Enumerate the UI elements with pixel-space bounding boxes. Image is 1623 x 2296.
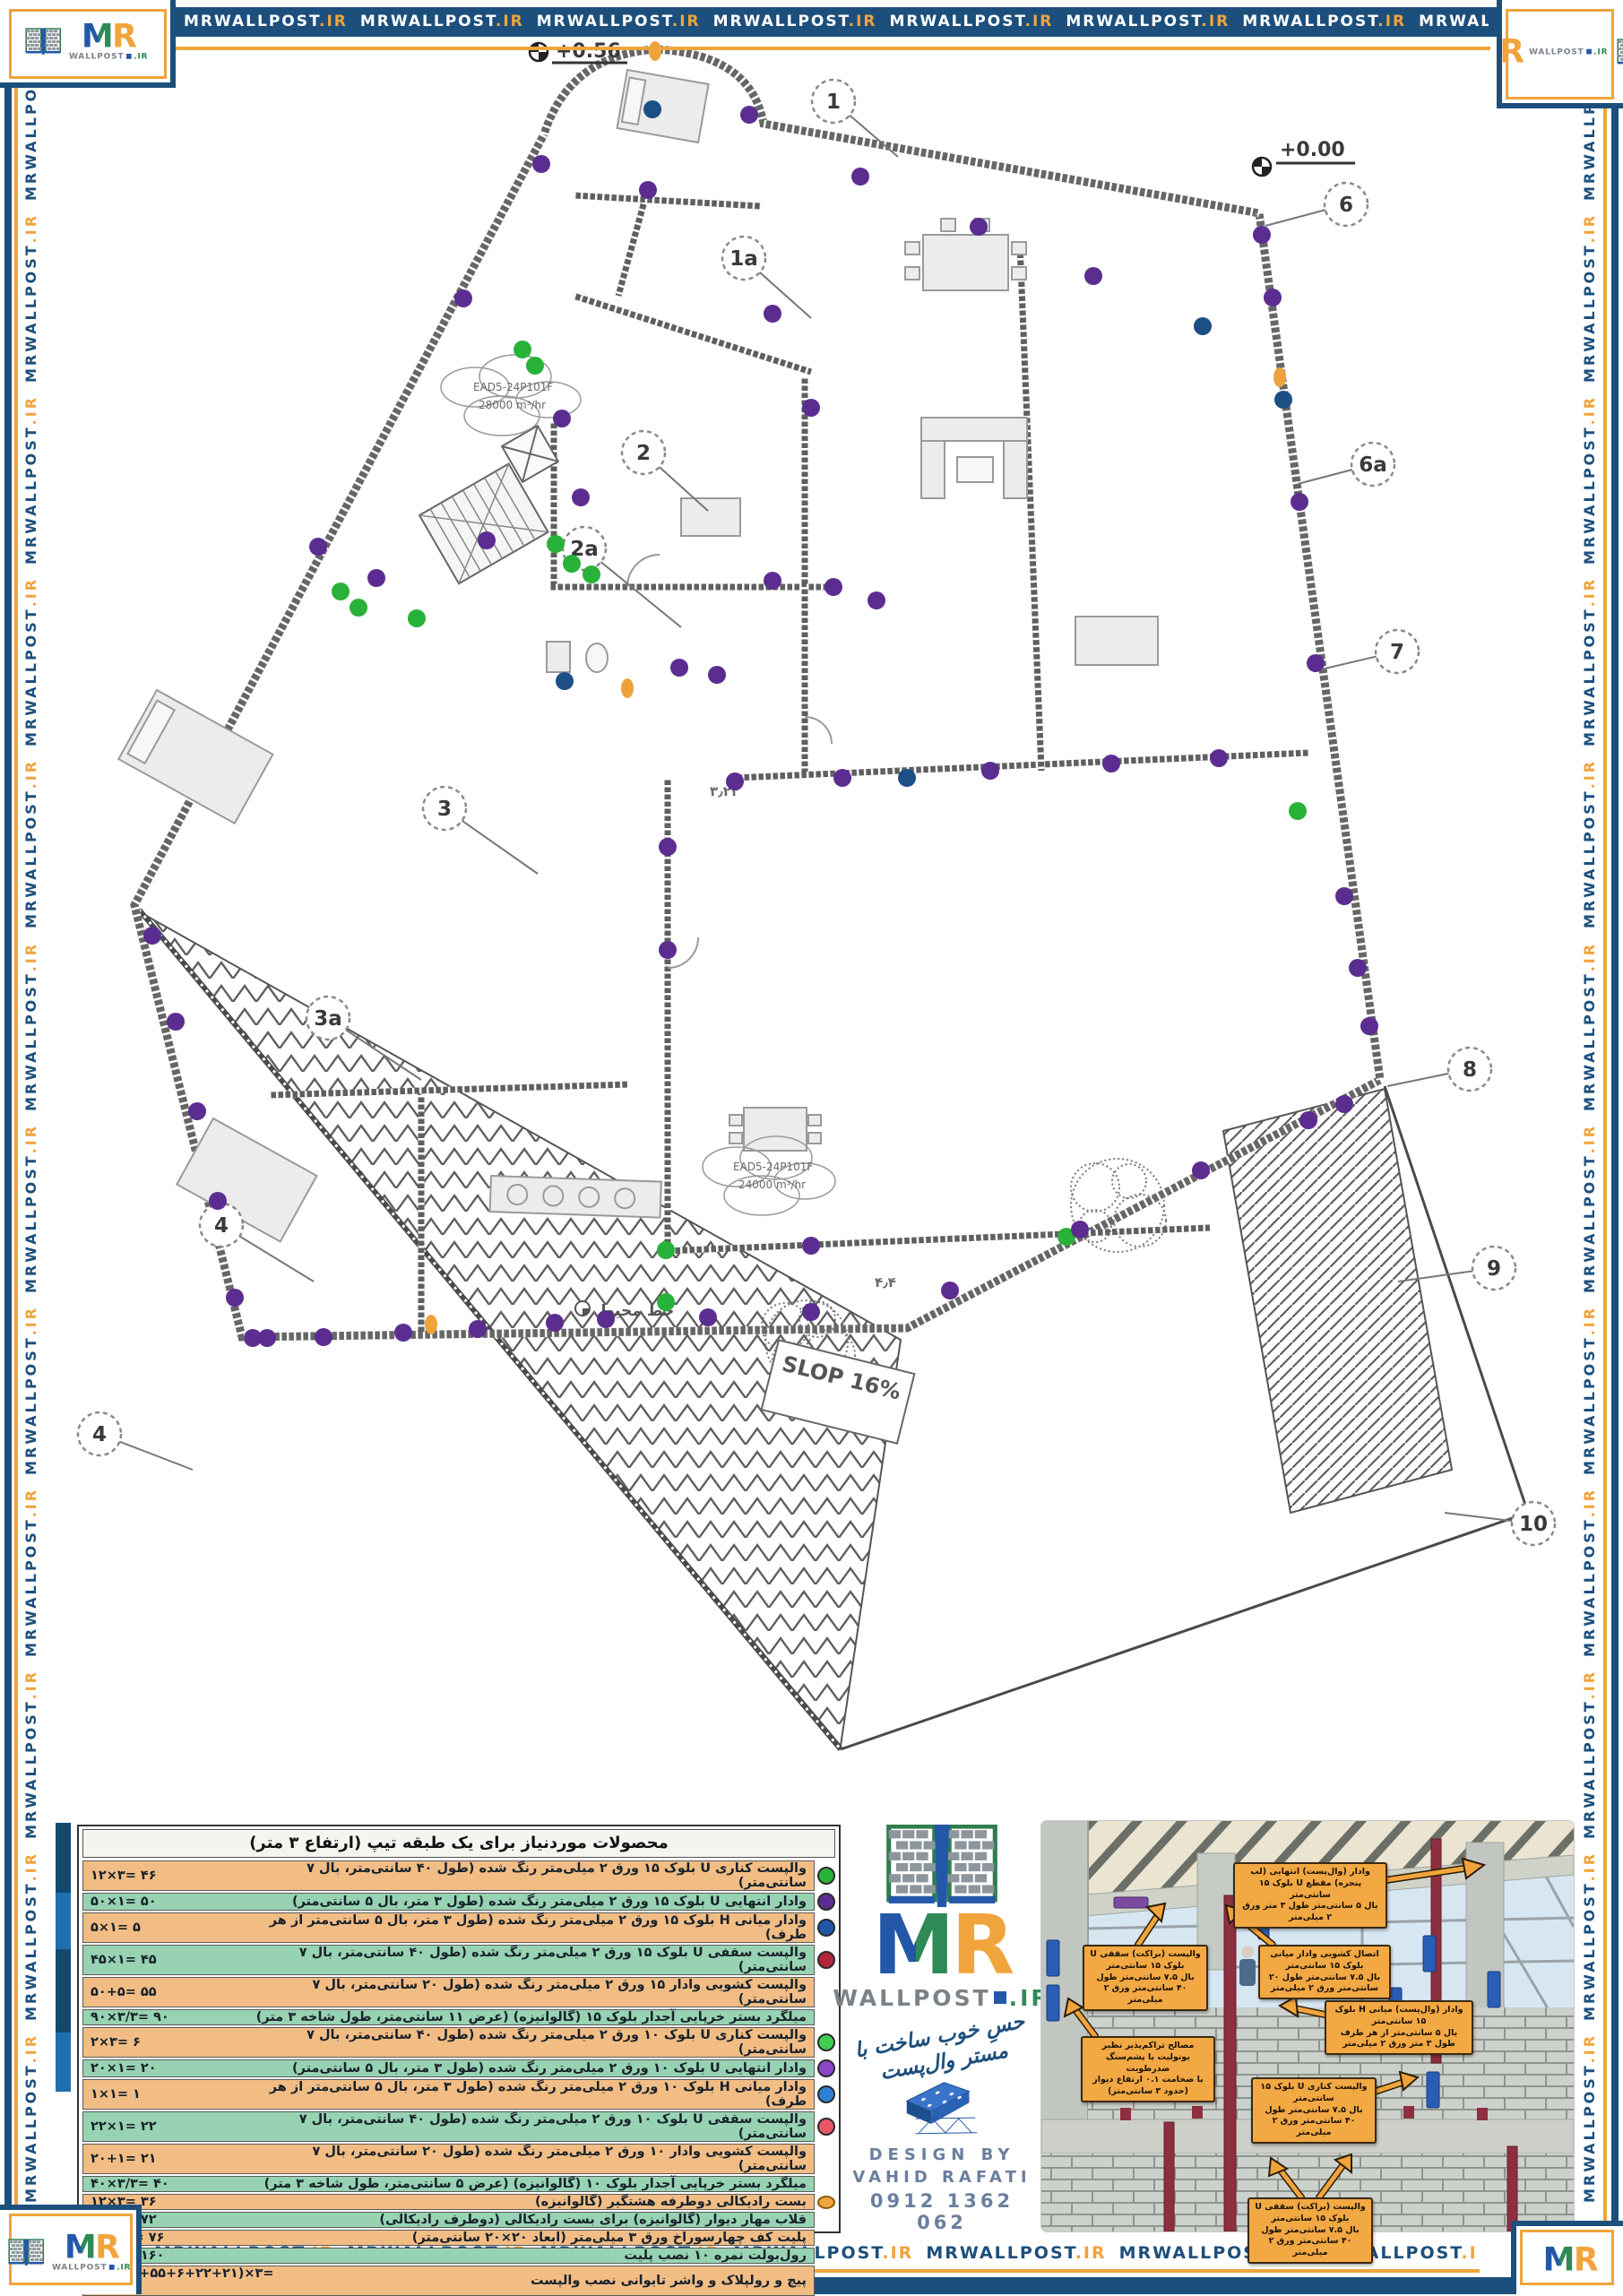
wallpost-dot-p <box>1102 755 1120 773</box>
wallpost-dot-p <box>1299 1111 1317 1129</box>
callout-line: اتصال کشویی وادار میانی بلوک ۱۵ سانتی‌مت… <box>1265 1949 1384 1972</box>
wallpost-dot-p <box>1084 267 1102 285</box>
callout-line: با ضخامت ۰.۱ ارتفاع دیوار (حدود ۳ سانتی‌… <box>1088 2075 1208 2098</box>
brand-text: MRWALLPOST.IR <box>22 213 39 383</box>
brick-building-icon <box>875 1825 1009 1907</box>
elevation-marker-right: +0.00 <box>1253 139 1355 176</box>
brand-strip-right: MRWALLPOST.IRMRWALLPOST.IRMRWALLPOST.IRM… <box>1578 85 1601 2209</box>
legend-marker-empty <box>817 2248 835 2264</box>
photo-callout: والپست کناری U بلوک ۱۵ سانتی‌متربال ۷.۵ … <box>1251 2077 1377 2144</box>
photo-callout: والپست (براکت) سقفی U بلوک ۱۵ سانتی‌مترب… <box>1083 1945 1208 2011</box>
wallpost-dot-n <box>643 100 661 118</box>
legend-marker-empty <box>817 2230 835 2246</box>
wallpost-dot-p <box>659 941 677 959</box>
legend-description: والپست کشویی وادار ۱۵ ورق ۲ میلی‌متر رنگ… <box>246 1978 814 2007</box>
brand-panel: MR WALLPOST.IR حسِ خوب ساخت با مستر وال‌… <box>848 1825 1036 2233</box>
designer-credit: DESIGN BY VAHID RAFATI 0912 1362 062 <box>848 2145 1036 2233</box>
wallpost-dot-p <box>740 106 758 124</box>
brand-text: MRWALLPOST.IR <box>713 13 877 30</box>
legend-quantity: ۵۰+۵= ۵۵ <box>83 1985 243 1999</box>
wallpost-dot-p <box>802 399 820 417</box>
legend-row-line: (۴۶+۴۵+۵۵+۶+۲۲+۲۱)×۳= ۶۰۰پیچ و رولپلاک و… <box>82 2266 835 2296</box>
wallpost-dot-p <box>478 531 496 549</box>
legend-row-line: ۴۵×۱= ۴۵والپست سقفی U بلوک ۱۵ ورق ۲ میلی… <box>82 1945 835 1975</box>
wallpost-dot-p <box>981 762 999 780</box>
brand-text: MRWALLPOST.IR <box>1066 13 1230 30</box>
grid-bubble-label: 2 <box>636 442 651 465</box>
wallpost-dot-p <box>167 1013 185 1031</box>
wallpost-dot-n <box>1194 317 1212 335</box>
grid-bubble-label: 7 <box>1390 641 1404 664</box>
grid-bubble-label: 3a <box>314 1007 342 1031</box>
legend-quantity: ۱۲×۳= ۴۶ <box>83 1869 243 1883</box>
callout-line: بال ۵ سانتی‌متر از هر طرف طول ۳ متر ورق … <box>1332 2028 1466 2051</box>
worker-figure <box>1239 1946 1256 1986</box>
wallpost-dot-g <box>332 583 350 600</box>
legend-quantity: ۴۰×۳/۳= ۴۰ <box>83 2177 243 2191</box>
wallpost-dot-p <box>1349 959 1367 977</box>
wallpost-dot-p <box>1335 1095 1353 1113</box>
wallpost-dot-p <box>553 410 571 427</box>
legend-quantity: ۲×۳= ۶ <box>83 2035 243 2050</box>
legend-row: ۱۲×۳= ۴۶والپست کناری U بلوک ۱۵ ورق ۲ میل… <box>82 1860 815 1891</box>
wallpost-dot-o <box>649 41 661 61</box>
legend-row-line: ۵۰×۱= ۵۰وادار انتهایی U بلوک ۱۵ ورق ۲ می… <box>82 1893 835 1911</box>
brand-text: MRWALLPOST.IR <box>22 1124 39 1293</box>
legend-row-line: ۵۵+۲۱= ۷۶پلیت کف چهارسوراخ ورق ۳ میلی‌مت… <box>82 2230 835 2246</box>
legend-row-line: ۴۰×۳/۳= ۴۰میلگرد بستر خرپایی آجدار بلوک … <box>82 2176 835 2192</box>
design-by-label: DESIGN BY <box>848 2145 1036 2164</box>
legend-quantity: ۲۰+۱= ۲۱ <box>83 2152 243 2166</box>
legend-marker-dot <box>817 2111 835 2142</box>
brand-text: MRWALLPOST.IR <box>1242 13 1406 30</box>
svg-text:+0.00: +0.00 <box>1280 139 1345 161</box>
corner-logo-bottom-left: MR WALLPOST.IR <box>0 2205 142 2294</box>
wallpost-dot-o <box>621 678 634 698</box>
brand-text: MRWALLPOST.IR <box>890 13 1054 30</box>
wallpost-dot-n <box>898 769 916 787</box>
cloud1-flow: 28000 m³/hr <box>479 399 546 411</box>
legend-row: ۵۰×۱= ۵۰وادار انتهایی U بلوک ۱۵ ورق ۲ می… <box>82 1893 815 1911</box>
legend-description: پلیت کف چهارسوراخ ورق ۳ میلی‌متر (ابعاد … <box>246 2231 814 2245</box>
legend-marker-dot <box>817 2059 835 2077</box>
wallpost-dot-o <box>425 1315 437 1334</box>
grid-bubble-label: 9 <box>1487 1257 1501 1281</box>
materials-legend-table: محصولات موردنیاز برای یک طبقه تیپ (ارتفا… <box>77 1825 841 2233</box>
brand-text: MRWALLPOST.IR <box>1581 1488 1598 1657</box>
brand-text: MRWALLPOST.IR <box>22 2033 39 2203</box>
brand-text: MRWALLPOST.IR <box>22 577 39 747</box>
wallpost-dot-p <box>367 569 385 587</box>
wallpost-dot-p <box>708 666 726 684</box>
brand-text: MRWALLPOST.IR <box>22 1488 39 1657</box>
wallpost-dot-g <box>657 1241 675 1259</box>
wallpost-dot-g <box>1289 802 1307 820</box>
legend-description: وادار میانی H بلوک ۱۰ ورق ۲ میلی‌متر رنگ… <box>246 2080 814 2109</box>
legend-marker-dot <box>817 2194 835 2210</box>
callout-line: بال ۵ سانتی‌متر طول ۳ متر ورق ۲ میلی‌متر <box>1240 1901 1380 1924</box>
callout-line: بال ۷.۵ سانتی‌متر طول ۴۰ سانتی‌متر ورق ۲… <box>1090 1972 1201 2007</box>
legend-marker-empty <box>817 2009 835 2025</box>
legend-description: والپست کناری U بلوک ۱۵ ورق ۲ میلی‌متر رن… <box>246 1861 814 1890</box>
svg-text:+0.56: +0.56 <box>556 40 621 63</box>
wallpost-dot-p <box>1335 887 1353 905</box>
legend-row: ۲×۳= ۶والپست کناری U بلوک ۱۰ ورق ۲ میلی‌… <box>82 2027 815 2058</box>
brand-text: MRWALLPOST.IR <box>1581 759 1598 928</box>
legend-row-line: ۵×۱= ۵وادار میانی H بلوک ۱۵ ورق ۲ میلی‌م… <box>82 1912 835 1943</box>
legend-quantity: ۹۰×۳/۳= ۹۰ <box>83 2010 243 2024</box>
brick-building-icon <box>5 2239 48 2266</box>
wallpost-dot-p <box>258 1329 276 1347</box>
legend-title: محصولات موردنیاز برای یک طبقه تیپ (ارتفا… <box>82 1829 835 1858</box>
wallpost-dot-p <box>1307 654 1325 672</box>
legend-description: والپست سقفی U بلوک ۱۵ ورق ۲ میلی‌متر رنگ… <box>246 1946 814 1974</box>
callout-line: والپست کناری U بلوک ۱۵ سانتی‌متر <box>1258 2082 1369 2105</box>
legend-row: ۹۰×۳/۳= ۹۰میلگرد بستر خرپایی آجدار بلوک … <box>82 2009 815 2025</box>
wallpost-dot-p <box>970 218 988 236</box>
wallpost-dot-p <box>699 1308 717 1326</box>
legend-marker-dot <box>817 2079 835 2110</box>
wallpost-dot-p <box>143 927 161 945</box>
door-swings <box>627 555 832 968</box>
callout-line: بال ۷.۵ سانتی‌متر طول ۲۰ سانتی‌متر ورق ۲… <box>1265 1972 1384 1996</box>
photo-callout: اتصال کشویی وادار میانی بلوک ۱۵ سانتی‌مت… <box>1258 1945 1391 1999</box>
wallpost-dot-g <box>526 357 544 375</box>
legend-row-line: ۲۰×۱= ۲۰وادار انتهایی U بلوک ۱۰ ورق ۲ می… <box>82 2059 835 2077</box>
wallpost-dot-p <box>764 572 781 590</box>
brand-text: MRWALLPOST.IR <box>1581 577 1598 747</box>
wallpost-dot-p <box>546 1314 564 1332</box>
wallpost-dot-o <box>1273 367 1286 387</box>
wallpost-dot-g <box>350 599 367 617</box>
legend-quantity: ۱×۱= ۱ <box>83 2087 243 2102</box>
legend-description: پیچ و رولپلاک و واشر تایوانی نصب والپست <box>246 2274 814 2288</box>
designer-name: VAHID RAFATI <box>848 2168 1036 2187</box>
brand-text: MRWALLPOST.IR <box>1581 1670 1598 1839</box>
wallpost-dot-n <box>1274 391 1292 409</box>
wallpost-dot-p <box>469 1320 487 1338</box>
legend-marker-empty <box>817 2212 835 2228</box>
wallpost-dot-p <box>833 769 851 787</box>
legend-description: والپست کشویی وادار ۱۰ ورق ۲ میلی‌متر رنگ… <box>246 2145 814 2173</box>
mr-wallpost-logo: MR WALLPOST.IR <box>833 1825 1050 2011</box>
legend-row: ۴۰×۳/۳= ۴۰میلگرد بستر خرپایی آجدار بلوک … <box>82 2176 815 2192</box>
brand-text: MRWALLPOST.IR <box>360 13 524 30</box>
brand-text: MRWALLPOST.IR <box>1581 2033 1598 2203</box>
staircase <box>419 464 548 584</box>
wallpost-dot-g <box>547 535 565 553</box>
grid-bubble-label: 6 <box>1339 194 1353 217</box>
legend-quantity: ۴۵×۱= ۴۵ <box>83 1953 243 1967</box>
grid-bubble-label: 10 <box>1519 1513 1548 1536</box>
wallpost-dot-p <box>454 289 472 307</box>
brand-text: MRWALLPOST.IR <box>1419 13 1489 30</box>
lower-ramp-hatch-area <box>1223 1089 1452 1513</box>
legend-row: ۱×۱= ۱وادار میانی H بلوک ۱۰ ورق ۲ میلی‌م… <box>82 2079 815 2110</box>
photo-callout: مصالح تراکم‌پذیر نظیر یونولیت یا پشم‌سنگ… <box>1081 2036 1215 2102</box>
legend-description: رول‌بولت نمره ۱۰ نصب پلیت <box>246 2249 814 2263</box>
brand-text: MRWALLPOST.IR <box>22 759 39 928</box>
callout-line: بال ۷.۵ سانتی‌متر طول ۴۰ سانتی‌متر ورق ۲… <box>1255 2225 1366 2259</box>
brand-text: MRWALLPOST.IR <box>22 85 39 201</box>
floor-plan-drawing: EAD5-24P101F 28000 m³/hr EAD5-24P101F 24… <box>0 0 1623 1819</box>
brand-text: MRWALLPOST.IR <box>22 1851 39 2021</box>
callout-line: والپست (براکت) سقفی U بلوک ۱۵ سانتی‌متر <box>1090 1949 1201 1972</box>
wallpost-dot-p <box>726 773 744 790</box>
wallpost-dot-p <box>1291 493 1308 511</box>
grid-bubble-label: 1 <box>826 91 841 114</box>
legend-row-line: ۲۲×۱= ۲۲والپست سقفی U بلوک ۱۰ ورق ۲ میلی… <box>82 2111 835 2142</box>
wallpost-dot-p <box>1253 226 1271 244</box>
legend-row-line: ۱×۱= ۱وادار میانی H بلوک ۱۰ ورق ۲ میلی‌م… <box>82 2079 835 2110</box>
legend-row: ۵۵+۲۱= ۷۶پلیت کف چهارسوراخ ورق ۳ میلی‌مت… <box>82 2230 815 2246</box>
wallpost-dot-p <box>226 1289 244 1307</box>
wallpost-dot-p <box>1071 1221 1089 1239</box>
wallpost-dot-p <box>802 1303 820 1321</box>
legend-row: ۵×۱= ۵وادار میانی H بلوک ۱۵ ورق ۲ میلی‌م… <box>82 1912 815 1943</box>
legend-row: (۴۶+۴۵+۵۵+۶+۲۲+۲۱)×۳= ۶۰۰پیچ و رولپلاک و… <box>82 2266 815 2296</box>
wallpost-dot-p <box>188 1102 206 1120</box>
brick-building-icon <box>1614 39 1623 65</box>
legend-description: وادار انتهایی U بلوک ۱۵ ورق ۲ میلی‌متر ر… <box>246 1895 814 1909</box>
legend-marker-empty <box>817 2144 835 2174</box>
right-border-bar <box>1611 0 1619 2294</box>
legend-quantity: ۵×۱= ۵ <box>83 1921 243 1935</box>
legend-row: ۴۵×۱= ۴۵والپست سقفی U بلوک ۱۵ ورق ۲ میلی… <box>82 1945 815 1975</box>
wallpost-dot-p <box>597 1310 615 1328</box>
legend-row-line: ۵۰+۵= ۵۵والپست کشویی وادار ۱۵ ورق ۲ میلی… <box>82 1977 835 2007</box>
wallpost-dot-p <box>639 181 657 199</box>
legend-row: ۲۲×۱= ۲۲والپست سقفی U بلوک ۱۰ ورق ۲ میلی… <box>82 2111 815 2142</box>
cloud1-code: EAD5-24P101F <box>473 381 553 393</box>
callout-line: بال ۷.۵ سانتی‌متر طول ۴۰ سانتی‌متر ورق ۲… <box>1258 2105 1369 2139</box>
legend-row-line: ۱۲×۳= ۳۶بست رادیکالی دوطرفه هشتگیر (گالو… <box>82 2194 835 2210</box>
callout-line: والپست (براکت) سقفی U بلوک ۱۵ سانتی‌متر <box>1255 2202 1366 2225</box>
legend-description: والپست سقفی U بلوک ۱۰ ورق ۲ میلی‌متر رنگ… <box>246 2112 814 2141</box>
legend-description: میلگرد بستر خرپایی آجدار بلوک ۱۰ (گالوان… <box>246 2177 814 2191</box>
legend-row: ۲۰×۱= ۲۰وادار انتهایی U بلوک ۱۰ ورق ۲ می… <box>82 2059 815 2077</box>
legend-description: میلگرد بستر خرپایی آجدار بلوک ۱۵ (گالوان… <box>246 2010 814 2024</box>
legend-row: ۱۲×۳= ۳۶بست رادیکالی دوطرفه هشتگیر (گالو… <box>82 2194 815 2210</box>
legend-row-line: ۹۰×۳/۳= ۹۰میلگرد بستر خرپایی آجدار بلوک … <box>82 2009 835 2025</box>
brand-text: MRWALLPOST.IR <box>1581 213 1598 383</box>
designer-phone: 0912 1362 062 <box>848 2190 1036 2233</box>
wallpost-dot-p <box>532 155 550 173</box>
brand-text: MRWALLPOST.IR <box>22 941 39 1110</box>
legend-description: والپست کناری U بلوک ۱۰ ورق ۲ میلی‌متر رن… <box>246 2028 814 2057</box>
mrwallpost-floorplan-poster: { "border": {"word": "MRWALLPOST", "tld"… <box>0 0 1623 2294</box>
photo-callout: وادار (وال‌پست) میانی H بلوک ۱۵ سانتی‌مت… <box>1325 2000 1473 2055</box>
grid-bubble-label: 4 <box>214 1214 229 1238</box>
wallpost-dot-p <box>1264 289 1282 306</box>
photo-callout: وادار (وال‌پست) انتهایی (لب پنجره) مقطع … <box>1233 1862 1387 1929</box>
corner-logo-bottom-right: MR <box>1511 2221 1623 2294</box>
wallpost-dot-p <box>394 1324 412 1342</box>
brick-building-icon <box>22 28 65 55</box>
wallpost-dot-p <box>659 838 677 856</box>
legend-description: قلاب مهار دیوار (گالوانیزه) برای بست راد… <box>246 2213 814 2227</box>
brand-text: MRWALLPOST.IR <box>926 2243 1106 2263</box>
wallpost-dot-p <box>802 1237 820 1255</box>
legend-row-line: ۱۲×۶= ۷۲قلاب مهار دیوار (گالوانیزه) برای… <box>82 2212 835 2228</box>
gold-line-top <box>175 47 1490 50</box>
brand-strip-top: MRWALLPOST.IRMRWALLPOST.IRMRWALLPOST.IRM… <box>177 7 1489 37</box>
legend-row: ۲۰+۱= ۲۱والپست کشویی وادار ۱۰ ورق ۲ میلی… <box>82 2144 815 2174</box>
wallpost-dot-g <box>408 609 426 627</box>
elevation-marker-top: +0.56 <box>530 40 627 63</box>
grid-bubble-label: 8 <box>1463 1058 1477 1082</box>
wallpost-dot-p <box>1210 749 1228 767</box>
wallpost-dot-g <box>583 565 600 583</box>
cloud2-flow: 24000 m³/hr <box>738 1178 806 1191</box>
grid-bubble-label: 1a <box>729 247 758 271</box>
callout-line: وادار (وال‌پست) انتهایی (لب پنجره) مقطع … <box>1240 1867 1380 1901</box>
brand-text: MRWALLPOST.IR <box>22 1306 39 1475</box>
wallpost-dot-p <box>209 1192 227 1210</box>
wallpost-dot-p <box>309 538 327 556</box>
grid-bubble-label: 4 <box>92 1423 107 1446</box>
corner-logo-top-right: MR WALLPOST.IR <box>1497 0 1623 108</box>
wallpost-dot-g <box>563 555 581 573</box>
wallpost-dot-g <box>657 1293 675 1311</box>
wallpost-dot-p <box>868 591 885 609</box>
grid-bubble-label: 3 <box>437 798 452 821</box>
callout-line: وادار (وال‌پست) میانی H بلوک ۱۵ سانتی‌مت… <box>1332 2005 1466 2028</box>
brand-text: MRWALLPOST.IR <box>1581 395 1598 565</box>
corner-logo-top-left: MR WALLPOST.IR <box>0 0 176 88</box>
wallpost-dot-p <box>670 659 688 677</box>
legend-row: ۵۰+۵= ۵۵والپست کشویی وادار ۱۵ ورق ۲ میلی… <box>82 1977 815 2007</box>
grid-bubble-label: 6a <box>1359 453 1387 477</box>
legend-marker-dot <box>817 2027 835 2058</box>
wallpost-dot-p <box>1360 1017 1378 1035</box>
wallpost-dot-n <box>556 672 574 690</box>
brand-text: MRWALLPOST.IR <box>1581 1851 1598 2021</box>
gold-line-right <box>1603 54 1607 2240</box>
wallpost-dot-p <box>824 578 842 596</box>
legend-quantity: ۲۲×۱= ۲۲ <box>83 2119 243 2134</box>
wallpost-dot-p <box>764 305 781 323</box>
brand-text: MRWALLPOST.IR <box>22 1670 39 1839</box>
callout-line: مصالح تراکم‌پذیر نظیر یونولیت یا پشم‌سنگ… <box>1088 2041 1208 2075</box>
legend-marker-empty <box>817 2266 835 2296</box>
legend-quantity: ۵۰×۱= ۵۰ <box>83 1895 243 1909</box>
wallpost-dot-p <box>1192 1161 1210 1179</box>
left-border-bar <box>4 0 12 2294</box>
legend-row: ۱۲×۶= ۷۲قلاب مهار دیوار (گالوانیزه) برای… <box>82 2212 815 2228</box>
legend-description: بست رادیکالی دوطرفه هشتگیر (گالوانیزه) <box>246 2195 814 2209</box>
wallpost-dot-p <box>572 488 590 506</box>
brand-text: MRWALLPOST.IR <box>1581 941 1598 1110</box>
brand-strip-left: MRWALLPOST.IRMRWALLPOST.IRMRWALLPOST.IRM… <box>20 85 43 2209</box>
cloud2-code: EAD5-24P101F <box>733 1161 813 1173</box>
legend-description: وادار انتهایی U بلوک ۱۰ ورق ۲ میلی‌متر ر… <box>246 2061 814 2076</box>
legend-quantity: ۲۰×۱= ۲۰ <box>83 2061 243 2076</box>
brand-text: MRWALLPOST.IR <box>22 395 39 565</box>
legend-row-line: ۲×۳= ۶والپست کناری U بلوک ۱۰ ورق ۲ میلی‌… <box>82 2027 835 2058</box>
legend-row-line: ۱۲×۳= ۴۶والپست کناری U بلوک ۱۵ ورق ۲ میل… <box>82 1860 835 1891</box>
wallpost-dot-p <box>941 1282 959 1299</box>
brand-text: MRWALLPOST.IR <box>184 13 348 30</box>
brand-text: MRWALLPOST.IR <box>1581 1124 1598 1293</box>
legend-description: وادار میانی H بلوک ۱۵ ورق ۲ میلی‌متر رنگ… <box>246 1913 814 1942</box>
legend-row-line: ۷۶×۲= ۱۶۰رول‌بولت نمره ۱۰ نصب پلیت <box>82 2248 835 2264</box>
legend-marker-empty <box>817 2176 835 2192</box>
brand-text: MRWALLPOST.IR <box>537 13 701 30</box>
wallpost-dot-p <box>851 168 869 186</box>
wallpost-dot-g <box>514 341 531 358</box>
wallpost-dot-p <box>315 1328 332 1346</box>
dim-b: ۴٫۴ <box>875 1274 896 1290</box>
photo-callout: والپست (براکت) سقفی U بلوک ۱۵ سانتی‌مترب… <box>1247 2197 1373 2264</box>
legend-row-line: ۲۰+۱= ۲۱والپست کشویی وادار ۱۰ ورق ۲ میلی… <box>82 2144 835 2174</box>
brand-text: MRWALLPOST.IR <box>1581 1306 1598 1475</box>
legend-row: ۷۶×۲= ۱۶۰رول‌بولت نمره ۱۰ نصب پلیت <box>82 2248 815 2264</box>
gold-line-left <box>14 54 18 2240</box>
legend-side-accent-bar <box>56 1823 71 2092</box>
